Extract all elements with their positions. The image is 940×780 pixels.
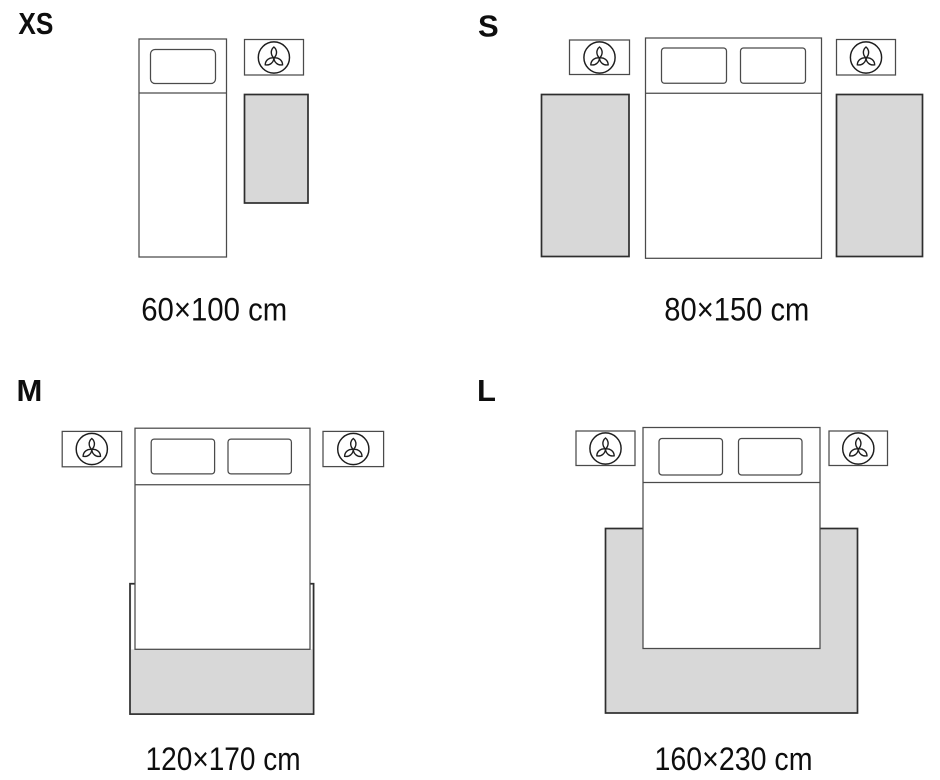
svg-text:S: S: [478, 8, 499, 43]
svg-text:M: M: [17, 373, 43, 408]
svg-text:XS: XS: [18, 6, 53, 41]
svg-text:60×100 cm: 60×100 cm: [141, 292, 287, 328]
svg-text:80×150 cm: 80×150 cm: [664, 292, 809, 328]
svg-text:120×170 cm: 120×170 cm: [146, 741, 301, 777]
svg-text:160×230 cm: 160×230 cm: [655, 741, 813, 777]
svg-text:L: L: [477, 373, 496, 408]
